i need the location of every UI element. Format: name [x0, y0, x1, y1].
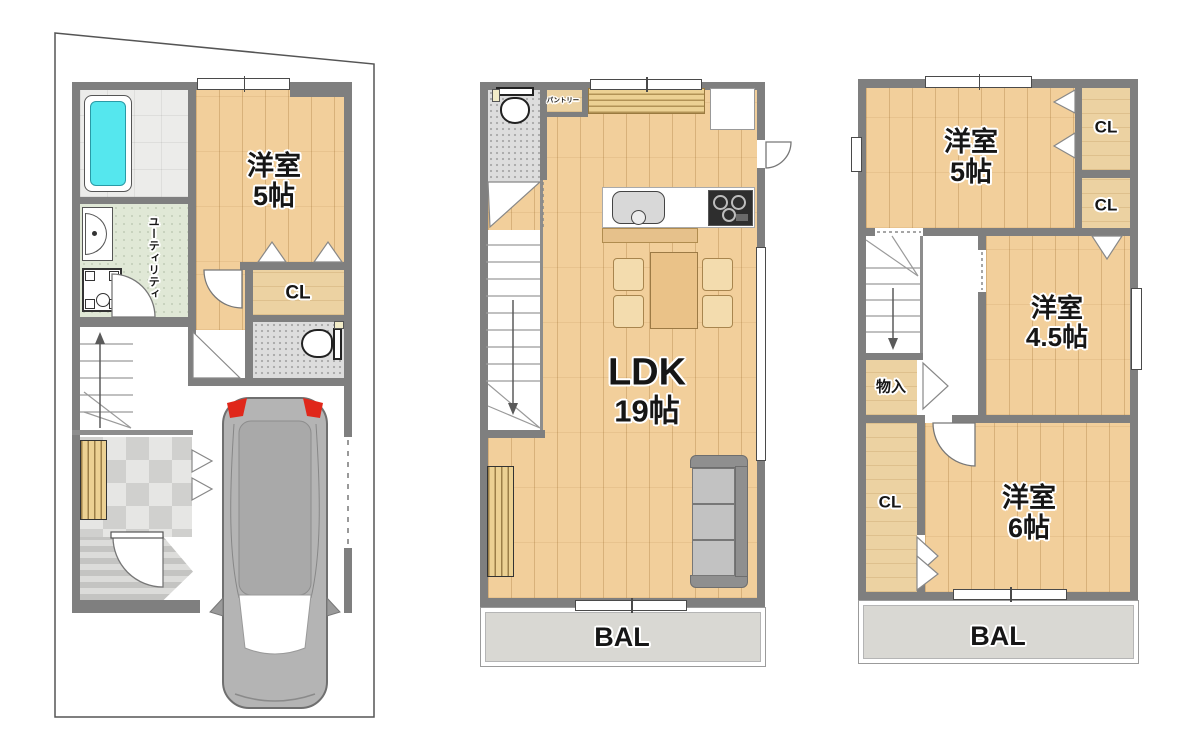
storage-door-wedge — [923, 363, 948, 409]
wall — [72, 600, 200, 613]
door-opening-f2-right — [757, 140, 765, 168]
sofa-cushion — [692, 504, 735, 540]
room-label-line: 4.5帖 — [1026, 323, 1088, 352]
door-swing-f2-right — [766, 142, 791, 168]
car-door-seam — [311, 424, 319, 598]
stove-burner — [731, 195, 746, 210]
room-label-line: 洋室 — [247, 151, 301, 181]
dining-chair-icon — [613, 295, 644, 328]
ldk-label-line: 19帖 — [608, 394, 686, 429]
door-opening-room6 — [925, 415, 952, 423]
wall — [290, 90, 352, 97]
window-tick — [979, 74, 981, 90]
window-f3-top — [925, 76, 1032, 88]
car-bumper — [235, 694, 315, 701]
closet-middle-label: CL — [1095, 195, 1118, 214]
washer-corner — [85, 299, 95, 309]
washing-machine-icon — [82, 268, 122, 312]
utility-label: ユーティリティ — [147, 216, 159, 300]
staircase-f1 — [80, 327, 133, 430]
washer-corner — [85, 271, 95, 281]
room-label-western45-f3: 洋室 4.5帖 — [1026, 294, 1088, 352]
window-f1-top — [197, 78, 290, 90]
kitchen-island-counter — [602, 187, 755, 228]
refrigerator-space — [710, 88, 755, 130]
toilet-bowl-icon-f1 — [301, 329, 333, 358]
room-label-line: 5帖 — [247, 181, 301, 211]
western-room-5-f1-entry — [196, 262, 245, 330]
wall — [540, 180, 543, 430]
wall — [866, 353, 923, 360]
room-label-line: 6帖 — [1002, 513, 1056, 543]
wood-deck-bench — [487, 466, 514, 577]
car-body — [223, 398, 327, 708]
wall — [188, 378, 352, 386]
washer-corner — [109, 299, 119, 309]
window-tick — [244, 76, 246, 92]
pocket-door-opening-f3 — [978, 250, 986, 292]
window-tick — [631, 598, 633, 613]
car-door-seam — [231, 424, 239, 598]
balcony-door-f3 — [953, 589, 1067, 600]
toilet-lid-icon-f1 — [334, 321, 344, 329]
pantry-label: パントリー — [547, 97, 579, 104]
sofa-cushion — [692, 468, 735, 504]
window-f2-right — [756, 247, 766, 461]
toilet-lever-icon-f2 — [492, 89, 500, 102]
stove-grill — [736, 214, 748, 221]
floor-plan-canvas: 洋室 5帖 CL ユーティリティ — [0, 0, 1200, 754]
entrance-wood-step — [80, 440, 107, 520]
door-wedge-hall-f1 — [193, 332, 240, 378]
closet-door-opening-f3 — [917, 535, 925, 580]
door-wedge-entrance — [192, 450, 212, 472]
car-roof — [239, 421, 311, 595]
closet-upper-label: CL — [1095, 117, 1118, 136]
wall — [866, 415, 1130, 423]
car-icon — [210, 398, 340, 708]
wall — [240, 262, 344, 270]
room-label-western5-f1: 洋室 5帖 — [247, 151, 301, 211]
washer-corner — [109, 271, 119, 281]
wall — [1082, 170, 1130, 178]
washer-drum — [96, 293, 110, 307]
room-label-line: 洋室 — [944, 127, 998, 157]
stove-burner — [722, 208, 736, 222]
balcony-label-f2: BAL — [594, 622, 650, 652]
counter-front-strip — [602, 228, 698, 243]
room-label-western6-f3: 洋室 6帖 — [1002, 483, 1056, 543]
gas-stove-icon — [708, 190, 753, 226]
toilet-tank-icon-f1 — [333, 328, 342, 360]
wall — [80, 317, 188, 327]
wall — [188, 82, 196, 380]
balcony-door-f2 — [575, 600, 687, 611]
toilet-bowl-icon-f2 — [500, 97, 530, 124]
window-f3-left — [851, 137, 862, 172]
sofa-cushion — [692, 540, 735, 576]
window-tick — [1010, 587, 1012, 602]
sofa-backrest — [735, 466, 748, 577]
car-taillight — [227, 398, 247, 418]
ldk-label-line: LDK — [608, 351, 686, 394]
wall — [245, 315, 344, 322]
car-windshield — [239, 595, 311, 654]
wall — [920, 236, 923, 353]
balcony-label-f3: BAL — [970, 621, 1026, 651]
room-label-line: 洋室 — [1026, 294, 1088, 323]
window-f2-top — [590, 79, 702, 90]
door-wedge-entrance — [192, 478, 212, 500]
storage-label: 物入 — [876, 380, 906, 397]
closet-lower-label: CL — [879, 492, 902, 511]
closet-label-f1: CL — [285, 282, 310, 303]
sink-faucet-icon — [631, 210, 646, 225]
room-label-line: 5帖 — [944, 157, 998, 187]
car-mirror — [327, 598, 340, 616]
toilet-tank-icon-f2 — [496, 87, 534, 96]
staircase-f2 — [485, 230, 540, 430]
wall — [545, 112, 588, 117]
sofa-icon — [690, 455, 748, 588]
dining-chair-icon — [613, 258, 644, 291]
entrance-porch — [80, 537, 193, 600]
wall — [480, 430, 545, 438]
window-f3-right — [1131, 288, 1142, 370]
staircase-f3 — [866, 236, 920, 353]
dining-table-icon — [650, 252, 698, 329]
window-tick — [646, 77, 648, 92]
wall — [344, 548, 352, 613]
wall — [80, 197, 188, 204]
washbasin-drain-icon — [92, 231, 97, 236]
dining-chair-icon — [702, 295, 733, 328]
wall — [1075, 88, 1082, 236]
bathtub-icon — [90, 101, 126, 186]
car-taillight — [303, 398, 323, 418]
wall — [72, 82, 80, 613]
stair-opening-f3 — [875, 228, 923, 236]
room-label-line: 洋室 — [1002, 483, 1056, 513]
dining-chair-icon — [702, 258, 733, 291]
room-label-western5-f3: 洋室 5帖 — [944, 127, 998, 187]
wall — [72, 430, 193, 435]
car-mirror — [210, 598, 223, 616]
ldk-label: LDK 19帖 — [608, 351, 686, 428]
